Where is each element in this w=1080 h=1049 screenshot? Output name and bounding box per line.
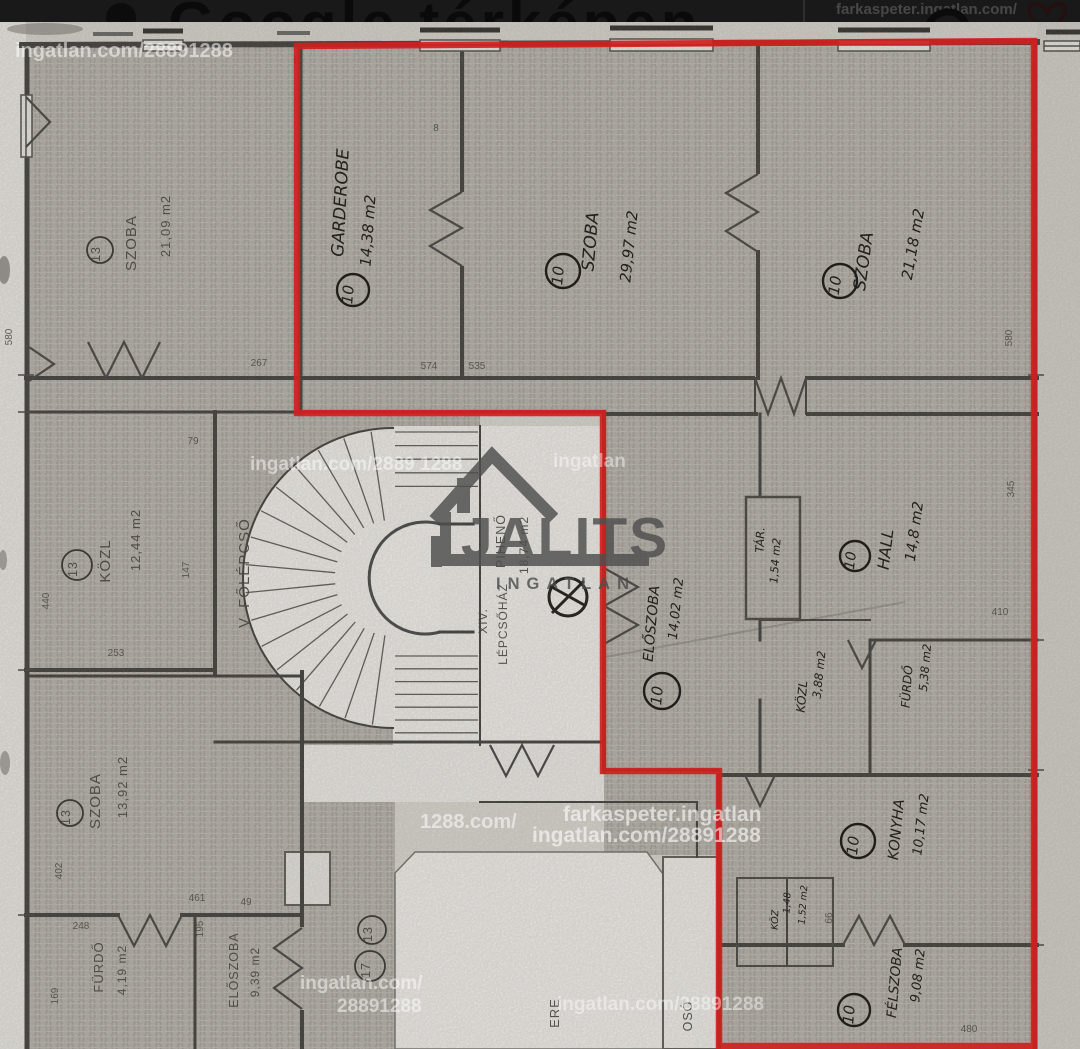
- bar-divider: [803, 0, 805, 22]
- dim: 410: [992, 607, 1009, 618]
- room-label: TÁR.: [752, 527, 768, 553]
- map-link-label[interactable]: Google térképen: [168, 0, 701, 22]
- watermark-text: farkaspeter.ingatlan: [563, 803, 761, 826]
- unit-number: 10: [548, 265, 568, 286]
- room-area: 1,48: [781, 892, 793, 914]
- unit-number: 10: [842, 551, 860, 571]
- dim: 345: [1006, 480, 1017, 497]
- top-app-bar: Google térképen farkaspeter.ingatlan.com…: [0, 0, 1080, 22]
- room-label: KÖZL: [96, 539, 114, 582]
- stairwell-label: LÉPCSŐHÁZ: [495, 583, 510, 665]
- floor-plan-svg: SZOBA 21,09 m2 KÖZL 12,44 m2 SZOBA 13,92…: [0, 0, 1080, 1049]
- floor-plan-page: SZOBA 21,09 m2 KÖZL 12,44 m2 SZOBA 13,92…: [0, 0, 1080, 1049]
- dim: 147: [181, 561, 192, 578]
- watermark-text: 28891288: [337, 996, 422, 1017]
- dim: 440: [41, 592, 52, 609]
- logo-brand: JALITS: [461, 506, 669, 570]
- dim: 79: [187, 436, 199, 447]
- dim: 580: [4, 328, 15, 345]
- favorite-heart-icon[interactable]: [1018, 0, 1076, 22]
- unit-number: 10: [647, 685, 667, 706]
- watermark-text: ingatlan.com/28891288: [532, 824, 761, 847]
- room-area: 9,39 m2: [248, 947, 262, 997]
- unit-number: 13: [66, 561, 80, 577]
- unit-number: 10: [338, 284, 358, 305]
- watermark-text: ingatlan.com/28891288: [557, 994, 764, 1015]
- dim: 480: [961, 1024, 978, 1035]
- watermark-text: ingatlan.com/28891288: [15, 40, 233, 62]
- watermark-text: 1288.com/: [420, 811, 517, 833]
- room-label: SZOBA: [87, 773, 104, 829]
- dim: 169: [50, 987, 61, 1004]
- unit-number: 13: [361, 926, 375, 942]
- dim: 248: [73, 921, 90, 932]
- dim: 574: [421, 361, 438, 372]
- watermark-text: ingatlan.com/: [300, 973, 423, 994]
- dim: 195: [195, 920, 206, 937]
- dim: 580: [1004, 329, 1015, 346]
- stair-label: V. FŐLÉPCSŐ: [236, 518, 253, 628]
- watermark-text: ingatlan: [553, 451, 626, 472]
- dim: 402: [54, 862, 65, 879]
- dim: 8: [433, 123, 439, 134]
- room-label: SZOBA: [123, 215, 140, 271]
- dim: 66: [824, 912, 835, 924]
- room-label: FÜRDŐ: [91, 941, 106, 992]
- room-area: 4,19 m2: [115, 945, 129, 995]
- room-area: 21,09 m2: [158, 195, 173, 257]
- dim: 49: [240, 897, 252, 908]
- unit-number: 10: [843, 835, 863, 856]
- room-area: 12,44 m2: [128, 509, 143, 571]
- logo-subtitle: INGATLAN: [496, 575, 636, 593]
- dim: 535: [469, 361, 486, 372]
- watermark-text: ingatlan.com/2889 1288: [250, 454, 462, 475]
- room-label: ELŐSZOBA: [226, 932, 241, 1007]
- dim: 461: [189, 893, 206, 904]
- unit-number: 10: [825, 275, 845, 296]
- map-pin-icon[interactable]: [100, 0, 142, 22]
- phone-icon[interactable]: [920, 0, 972, 22]
- dim: 267: [251, 358, 268, 369]
- room-area: 13,92 m2: [115, 756, 130, 818]
- unit-number: 10: [839, 1004, 859, 1025]
- dim: 253: [108, 648, 125, 659]
- unit-number: 13: [59, 809, 73, 825]
- unit-number: 13: [89, 246, 103, 262]
- stairwell-number: XIV.: [476, 608, 490, 634]
- room-label: KÖZ: [770, 909, 782, 930]
